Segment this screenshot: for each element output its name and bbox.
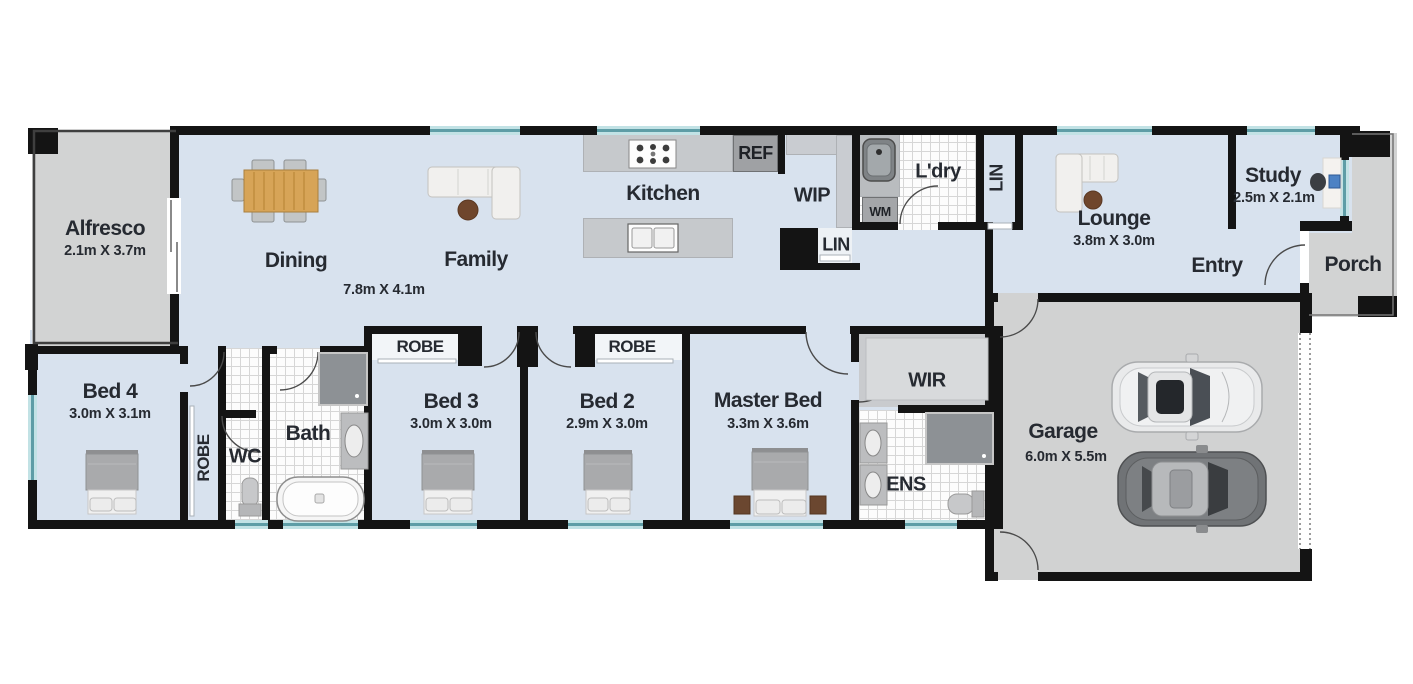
floor-ensuite-tiles bbox=[859, 410, 995, 522]
ref-label: REF bbox=[738, 143, 773, 164]
wall-segment bbox=[218, 346, 226, 529]
wall-segment bbox=[851, 400, 859, 529]
wall-segment bbox=[180, 346, 188, 364]
window bbox=[1247, 126, 1315, 135]
window bbox=[410, 520, 477, 529]
room-dims-lounge: 3.8m X 3.0m bbox=[1073, 233, 1155, 249]
wall-segment bbox=[520, 126, 597, 135]
room-label-ens: ENS bbox=[886, 474, 926, 497]
wall-segment bbox=[985, 222, 993, 302]
window bbox=[568, 520, 643, 529]
wall-segment bbox=[28, 346, 183, 354]
wall-segment bbox=[985, 293, 994, 581]
floor-plan: REF WM bbox=[0, 0, 1413, 684]
wall-segment bbox=[1340, 216, 1349, 224]
wall-corner-block bbox=[1348, 131, 1390, 157]
room-label-robe-hall: ROBE bbox=[194, 434, 214, 481]
room-label-alfresco: Alfresco bbox=[65, 217, 145, 241]
room-label-lin-hall: LIN bbox=[987, 164, 1008, 192]
wall-segment bbox=[170, 126, 430, 135]
wall-segment bbox=[28, 520, 235, 529]
wall-segment bbox=[1038, 572, 1312, 581]
wall-segment bbox=[1015, 126, 1023, 230]
laundry-bench bbox=[858, 133, 900, 197]
wall-segment bbox=[1300, 293, 1312, 334]
wall-nib bbox=[575, 326, 595, 367]
wm-label: WM bbox=[869, 205, 890, 219]
room-label-lounge: Lounge bbox=[1078, 207, 1151, 231]
window bbox=[730, 520, 823, 529]
wall-segment bbox=[1340, 135, 1349, 160]
room-dims-master: 3.3m X 3.6m bbox=[727, 416, 809, 432]
room-label-bed3: Bed 3 bbox=[424, 390, 479, 414]
window bbox=[1057, 126, 1152, 135]
room-label-kitchen: Kitchen bbox=[626, 182, 700, 206]
wall-segment bbox=[268, 520, 283, 529]
room-label-entry: Entry bbox=[1191, 254, 1242, 278]
room-dims-garage: 6.0m X 5.5m bbox=[1025, 449, 1107, 465]
kitchen-island-bench bbox=[583, 218, 733, 258]
wall-segment bbox=[850, 326, 1003, 334]
room-label-porch: Porch bbox=[1324, 253, 1381, 277]
room-dims-bed2: 2.9m X 3.0m bbox=[566, 416, 648, 432]
wall-segment bbox=[823, 520, 905, 529]
room-label-robe-bed2: ROBE bbox=[608, 337, 655, 357]
room-label-master: Master Bed bbox=[714, 389, 822, 413]
wall-corner-block bbox=[1358, 296, 1397, 317]
window bbox=[430, 126, 520, 135]
room-label-bed4: Bed 4 bbox=[83, 380, 138, 404]
wall-segment bbox=[1300, 548, 1312, 581]
window bbox=[28, 395, 37, 480]
room-label-laundry: L'dry bbox=[915, 161, 961, 184]
window bbox=[597, 126, 700, 135]
room-dims-bed3: 3.0m X 3.0m bbox=[410, 416, 492, 432]
room-label-wip: WIP bbox=[794, 185, 830, 208]
wall-segment bbox=[180, 392, 188, 529]
window bbox=[1340, 160, 1349, 216]
wall-segment bbox=[170, 126, 179, 198]
window bbox=[905, 520, 957, 529]
wall-segment bbox=[28, 346, 37, 395]
room-label-study: Study bbox=[1245, 164, 1301, 188]
wall-segment bbox=[852, 126, 860, 230]
refrigerator-box: REF bbox=[733, 135, 778, 172]
wall-nib bbox=[778, 133, 785, 174]
room-label-lin-pantry: LIN bbox=[822, 235, 850, 256]
room-dims-alfresco: 2.1m X 3.7m bbox=[64, 243, 146, 259]
wall-segment bbox=[780, 263, 860, 270]
wall-segment bbox=[222, 410, 256, 418]
room-label-garage: Garage bbox=[1028, 420, 1097, 444]
wall-segment bbox=[262, 346, 270, 529]
room-label-family: Family bbox=[444, 248, 508, 272]
wall-segment bbox=[976, 126, 984, 230]
window bbox=[283, 520, 358, 529]
wall-segment bbox=[851, 326, 859, 362]
wall-segment bbox=[1228, 126, 1236, 229]
wall-segment bbox=[682, 326, 690, 529]
room-label-bed2: Bed 2 bbox=[580, 390, 635, 414]
room-label-wir: WIR bbox=[908, 370, 945, 393]
wall-segment bbox=[520, 326, 528, 529]
linen-pantry-block bbox=[780, 228, 818, 263]
wall-segment bbox=[170, 294, 179, 354]
wall-nib bbox=[458, 326, 482, 366]
room-label-dining: Dining bbox=[265, 249, 327, 273]
room-label-wc: WC bbox=[229, 446, 261, 469]
wall-corner-block bbox=[28, 128, 58, 154]
room-dims-bed4: 3.0m X 3.1m bbox=[69, 406, 151, 422]
room-dims-family: 7.8m X 4.1m bbox=[343, 282, 425, 298]
wall-segment bbox=[364, 326, 372, 529]
kitchen-bench bbox=[583, 133, 733, 172]
room-label-robe-bed3: ROBE bbox=[396, 337, 443, 357]
room-dims-study: 2.5m X 2.1m bbox=[1233, 190, 1315, 206]
wall-segment bbox=[1038, 293, 1312, 302]
room-label-bath: Bath bbox=[286, 422, 331, 446]
floor-lounge-entry-study bbox=[965, 130, 1355, 300]
wall-segment bbox=[28, 480, 37, 529]
window bbox=[235, 520, 268, 529]
wall-segment bbox=[700, 126, 1057, 135]
